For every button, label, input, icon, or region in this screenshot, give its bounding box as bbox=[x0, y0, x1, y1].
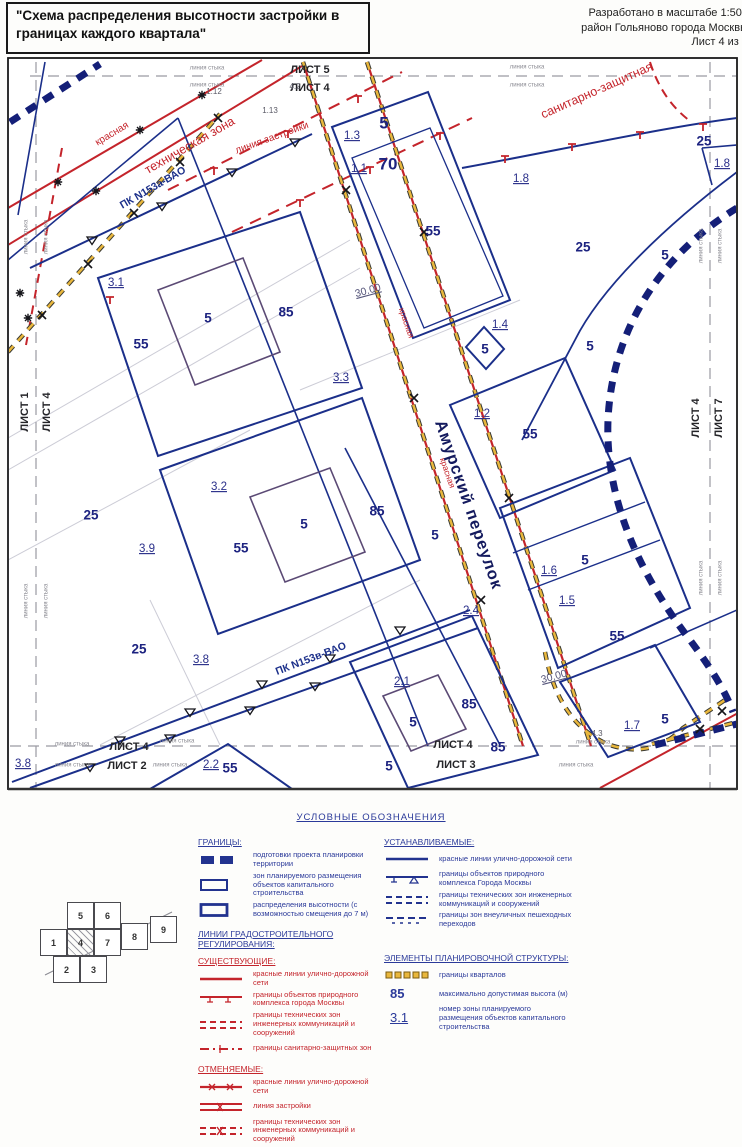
star-marker bbox=[54, 178, 62, 186]
map-label: линия стыка bbox=[718, 560, 724, 595]
map-label: 3.1 bbox=[108, 277, 124, 289]
map-label: линия стыка bbox=[510, 65, 545, 71]
legend-row: красные линии улично-дорожной сети bbox=[198, 1078, 378, 1096]
map-label: 5 bbox=[385, 759, 393, 774]
map-label: линия стыка bbox=[24, 219, 30, 254]
map-label: 5 bbox=[581, 553, 589, 568]
map-label: 1.4 bbox=[492, 319, 509, 331]
legend-section-title: ЛИНИИ ГРАДОСТРОИТЕЛЬНОГО РЕГУЛИРОВАНИЯ: bbox=[198, 929, 378, 949]
map-label: 1.7 bbox=[624, 720, 640, 732]
map-label: ЛИСТ 4 bbox=[109, 741, 149, 753]
legend-label: линия застройки bbox=[253, 1102, 311, 1111]
map-label: линия стыка bbox=[559, 763, 594, 769]
legend-row: распределения высотности (с возможностью… bbox=[198, 901, 378, 919]
sheet-index-cell-4: 4 bbox=[67, 929, 94, 956]
star-marker bbox=[16, 289, 24, 297]
map-label: 55 bbox=[425, 224, 441, 239]
legend-symbol-blue-opk bbox=[384, 871, 432, 887]
legend-section-title: ЭЛЕМЕНТЫ ПЛАНИРОВОЧНОЙ СТРУКТУРЫ: bbox=[384, 953, 576, 963]
legend-row: границы зон внеуличных пешеходных перехо… bbox=[384, 911, 576, 929]
legend-label: границы объектов природного комплекса го… bbox=[253, 991, 378, 1009]
map-label: 1.2 bbox=[474, 408, 490, 420]
map-label: линия стыка bbox=[510, 83, 545, 89]
legend-header: УСЛОВНЫЕ ОБОЗНАЧЕНИЯ bbox=[0, 812, 742, 823]
map-label: 25 bbox=[83, 508, 99, 523]
map-label: 1.1 bbox=[351, 163, 367, 175]
map-label: 5 bbox=[409, 715, 417, 730]
legend-row: подготовки проекта планировки территории bbox=[198, 851, 378, 869]
legend-label: границы зон внеуличных пешеходных перехо… bbox=[439, 911, 576, 929]
star-marker bbox=[198, 91, 206, 99]
sheet-index-cell-8: 8 bbox=[121, 923, 148, 950]
map-label: 85 bbox=[278, 305, 294, 320]
map-label: 5 bbox=[661, 712, 669, 727]
legend-row: границы объектов природного комплекса Го… bbox=[384, 870, 576, 888]
map-label: 85 bbox=[490, 740, 506, 755]
legend-row: 3.1номер зоны планируемого размещения об… bbox=[384, 1005, 576, 1032]
legend-row: красные линии улично-дорожной сети bbox=[198, 970, 378, 988]
map-label: линия стыка bbox=[55, 763, 90, 769]
legend-section-title: ОТМЕНЯЕМЫЕ: bbox=[198, 1064, 378, 1074]
map-label: 1.13 bbox=[262, 106, 278, 115]
sheet-index-cell-5: 5 bbox=[67, 902, 94, 929]
map-label: 2.4 bbox=[463, 605, 480, 617]
map-label: 85 bbox=[461, 697, 477, 712]
map-label: линия стыка bbox=[44, 583, 50, 618]
map-label: 1.6 bbox=[541, 565, 557, 577]
legend-row: границы технических зон инженерных комму… bbox=[198, 1118, 378, 1145]
legend-row: границы технических зон инженерных комму… bbox=[384, 891, 576, 909]
map-label: линия стыка bbox=[718, 228, 724, 263]
legend-symbol-zrect bbox=[198, 877, 246, 893]
legend-symbol-red-line-x bbox=[198, 1079, 246, 1095]
legend-label: максимально допустимая высота (м) bbox=[439, 990, 568, 999]
legend-section-title: УСТАНАВЛИВАЕМЫЕ: bbox=[384, 837, 576, 847]
legend-row: 85максимально допустимая высота (м) bbox=[384, 986, 576, 1002]
legend-row: границы кварталов bbox=[384, 967, 576, 983]
legend-symbol-red-opk bbox=[198, 991, 246, 1007]
sheet-index-cell-6: 6 bbox=[94, 902, 121, 929]
map-label: 3.3 bbox=[333, 372, 349, 384]
legend-symbol-red-line bbox=[198, 971, 246, 987]
map-label: ЛИСТ 4 bbox=[690, 398, 702, 438]
map-label: 1.12 bbox=[206, 87, 222, 96]
legend-label: красные линии улично-дорожной сети bbox=[439, 855, 572, 864]
sheet-index-cell-1: 1 bbox=[40, 929, 67, 956]
legend-row: границы санитарно-защитных зон bbox=[198, 1041, 378, 1057]
legend-symbol-blue-ped bbox=[384, 912, 432, 928]
map-label: 4.2 bbox=[289, 82, 301, 91]
map-label: линия стыка bbox=[24, 583, 30, 618]
legend-symbol-text-u: 3.1 bbox=[384, 1010, 432, 1026]
map-label: 85 bbox=[369, 504, 385, 519]
sheet-index-cell-3: 3 bbox=[80, 956, 107, 983]
map-label: 70 bbox=[379, 154, 398, 173]
map-label: 55 bbox=[522, 427, 538, 442]
legend-label: подготовки проекта планировки территории bbox=[253, 851, 378, 869]
map-label: 5 bbox=[661, 248, 669, 263]
map-label: 2.1 bbox=[394, 676, 410, 688]
map-label: 25 bbox=[131, 642, 147, 657]
map-label: 1.8 bbox=[513, 173, 529, 185]
map-label: 25 bbox=[696, 134, 712, 149]
map-label: ЛИСТ 7 bbox=[713, 398, 725, 437]
map-label: 5 bbox=[379, 113, 388, 132]
map-label: 55 bbox=[222, 761, 238, 776]
map-label: 55 bbox=[609, 629, 625, 644]
legend-symbol-red-san bbox=[198, 1041, 246, 1057]
legend-label: распределения высотности (с возможностью… bbox=[253, 901, 378, 919]
map-label: 2.2 bbox=[203, 759, 219, 771]
legend-symbol-red-bld-x bbox=[198, 1099, 246, 1115]
legend-label: зон планируемого размещения объектов кап… bbox=[253, 872, 378, 899]
legend-symbol-red-tech-x bbox=[198, 1123, 246, 1139]
sheet-index-cell-7: 7 bbox=[94, 929, 121, 956]
legend-row: границы технических зон инженерных комму… bbox=[198, 1011, 378, 1038]
map-label: 55 bbox=[133, 337, 149, 352]
legend-section-title: СУЩЕСТВУЮЩИЕ: bbox=[198, 956, 378, 966]
legend-symbol-prep bbox=[198, 852, 246, 868]
legend-label: номер зоны планируемого размещения объек… bbox=[439, 1005, 576, 1032]
legend-symbol-blue-tech bbox=[384, 892, 432, 908]
map-label: линия стыка bbox=[576, 740, 611, 746]
map-label: 1.3 bbox=[344, 130, 360, 142]
legend-row: линия застройки bbox=[198, 1099, 378, 1115]
legend-row: зон планируемого размещения объектов кап… bbox=[198, 872, 378, 899]
sheet-index-cell-9: 9 bbox=[150, 916, 177, 943]
map-label: ЛИСТ 3 bbox=[436, 759, 475, 771]
legend-label: границы санитарно-защитных зон bbox=[253, 1044, 371, 1053]
map-label: 5 bbox=[481, 342, 489, 357]
legend-label: границы кварталов bbox=[439, 971, 506, 980]
legend-label: границы технических зон инженерных комму… bbox=[253, 1118, 378, 1145]
legend-left-column: ГРАНИЦЫ:подготовки проекта планировки те… bbox=[198, 830, 378, 1147]
map-label: ЛИСТ 4 bbox=[41, 392, 53, 432]
legend-symbol-red-tech bbox=[198, 1017, 246, 1033]
legend-symbol-text: 85 bbox=[384, 986, 432, 1002]
star-marker bbox=[92, 187, 100, 195]
page: { "header": { "title": "\"Схема распреде… bbox=[0, 0, 742, 1068]
legend-label: границы объектов природного комплекса Го… bbox=[439, 870, 576, 888]
map-label: линия стыка bbox=[55, 742, 90, 748]
map-label: 3.2 bbox=[211, 481, 227, 493]
map-label: линия стыка bbox=[153, 763, 188, 769]
legend-label: границы технических зон инженерных комму… bbox=[253, 1011, 378, 1038]
map-label: 4.3 bbox=[591, 729, 603, 738]
map-label: линия стыка bbox=[699, 228, 705, 263]
legend-section-title: ГРАНИЦЫ: bbox=[198, 837, 378, 847]
star-marker bbox=[24, 314, 32, 322]
map-label: ЛИСТ 2 bbox=[107, 760, 146, 772]
legend-label: границы технических зон инженерных комму… bbox=[439, 891, 576, 909]
map-label: 1.8 bbox=[714, 158, 730, 170]
legend-right-column: УСТАНАВЛИВАЕМЫЕ:красные линии улично-дор… bbox=[384, 830, 576, 1035]
map-label: ЛИСТ 5 bbox=[290, 64, 329, 76]
map-label: 5 bbox=[204, 311, 212, 326]
map-label: 55 bbox=[233, 541, 249, 556]
map-label: 3.8 bbox=[15, 758, 31, 770]
map-label: 3.9 bbox=[139, 543, 155, 555]
map-label: ЛИСТ 4 bbox=[433, 739, 473, 751]
legend-label: красные линии улично-дорожной сети bbox=[253, 1078, 378, 1096]
map-label: линия стыка bbox=[190, 66, 225, 72]
legend-row: красные линии улично-дорожной сети bbox=[384, 851, 576, 867]
legend-symbol-hrect bbox=[198, 902, 246, 918]
map-label: 5 bbox=[300, 517, 308, 532]
legend-label: красные линии улично-дорожной сети bbox=[253, 970, 378, 988]
map-label: ЛИСТ 1 bbox=[19, 392, 31, 431]
sheet-index-cell-2: 2 bbox=[53, 956, 80, 983]
map-label: 25 bbox=[575, 240, 591, 255]
map-label: 5 bbox=[431, 528, 439, 543]
map-label: линия стыка bbox=[160, 739, 195, 745]
map-label: линия стыка bbox=[44, 219, 50, 254]
map-label: линия стыка bbox=[699, 560, 705, 595]
star-marker bbox=[136, 126, 144, 134]
legend-symbol-quarter bbox=[384, 967, 432, 983]
legend-row: границы объектов природного комплекса го… bbox=[198, 991, 378, 1009]
map-label: 5 bbox=[586, 339, 594, 354]
map-label: 3.8 bbox=[193, 654, 209, 666]
map-label: 1.5 bbox=[559, 595, 575, 607]
legend-symbol-blue-line bbox=[384, 851, 432, 867]
